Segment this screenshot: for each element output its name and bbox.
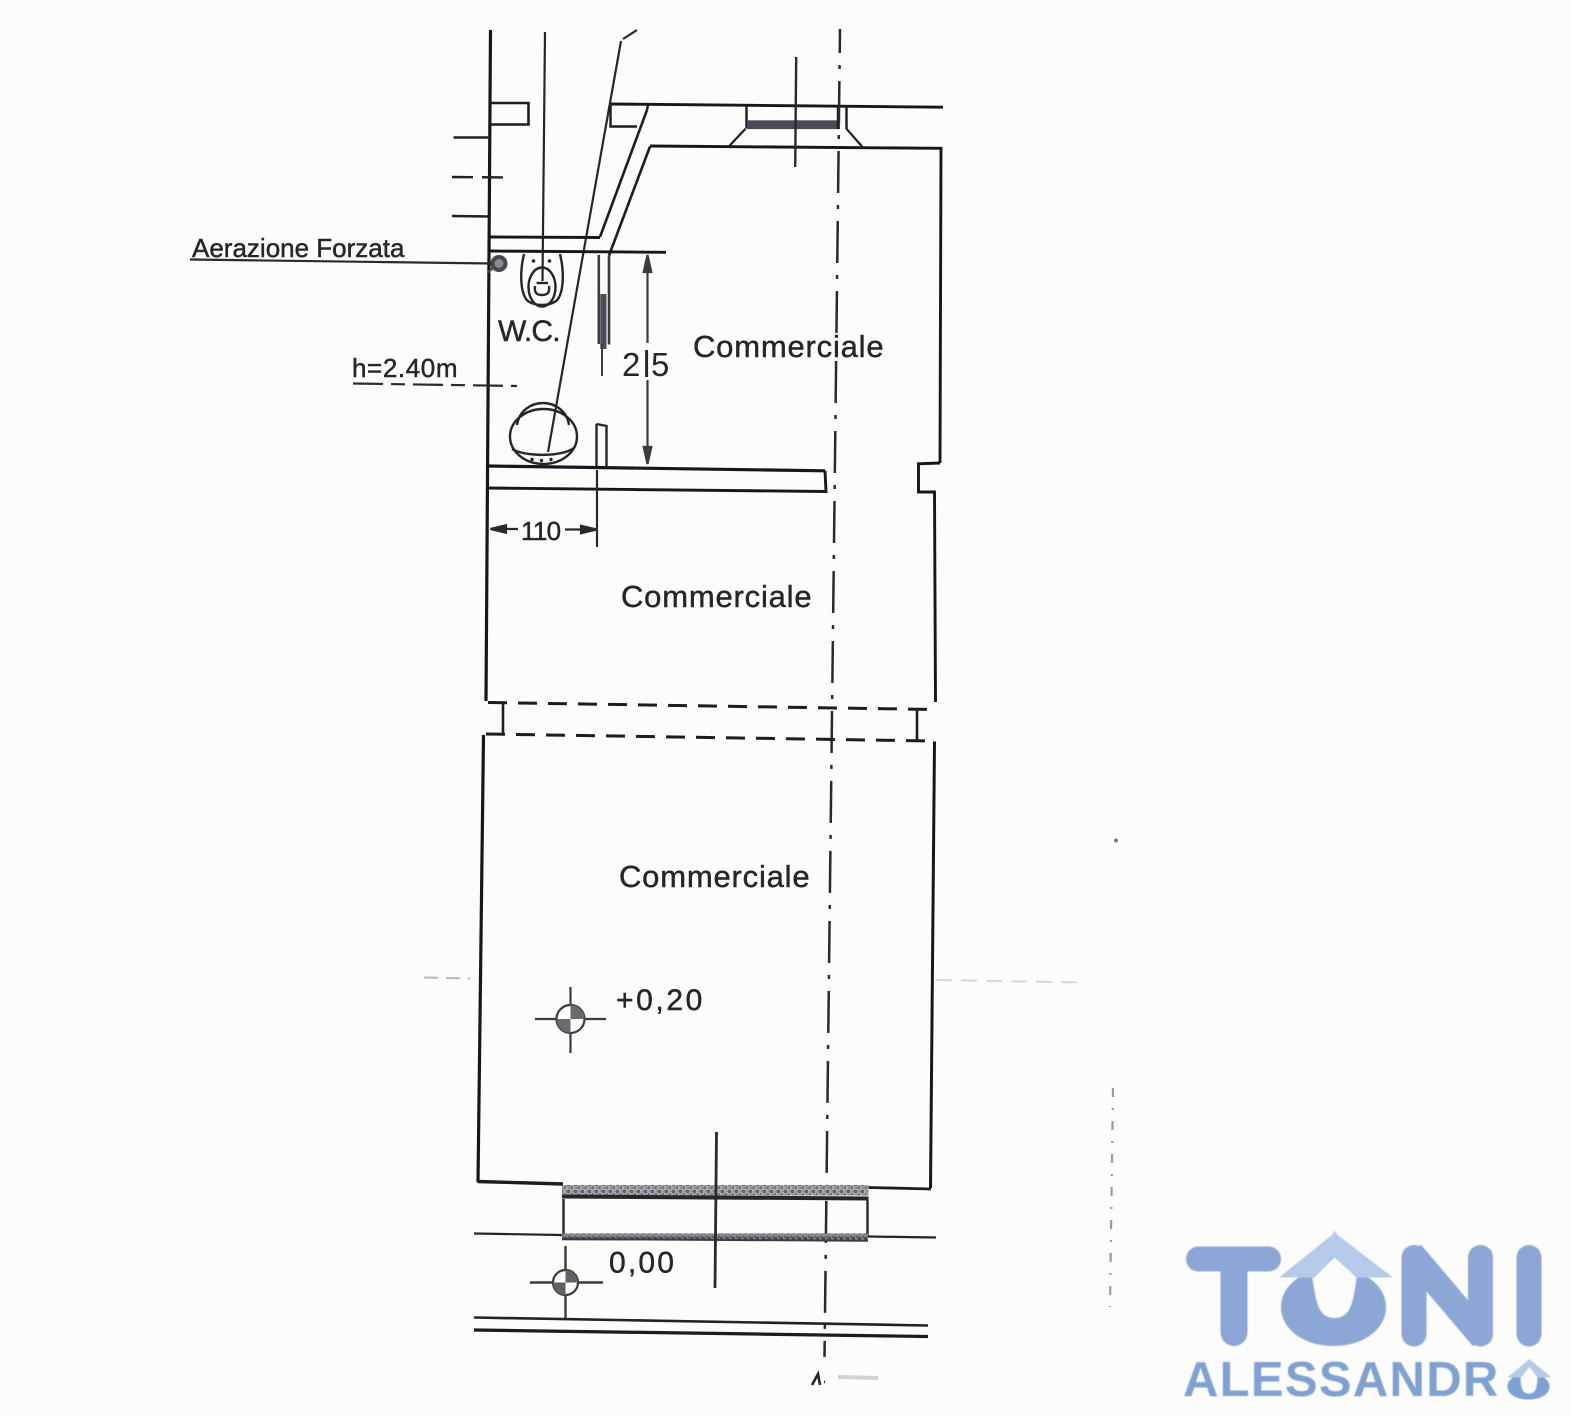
- svg-text:110: 110: [521, 516, 561, 546]
- svg-text:2: 2: [622, 346, 640, 383]
- svg-text:W.C.: W.C.: [498, 315, 560, 348]
- svg-text:5: 5: [651, 346, 669, 383]
- svg-text:Commerciale: Commerciale: [619, 859, 810, 894]
- svg-text:ALESSANDR: ALESSANDR: [1183, 1353, 1500, 1407]
- svg-text:+0,20: +0,20: [616, 984, 705, 1017]
- svg-text:Aerazione Forzata: Aerazione Forzata: [192, 233, 405, 263]
- svg-text:0,00: 0,00: [609, 1247, 676, 1280]
- svg-text:Commerciale: Commerciale: [693, 329, 884, 364]
- svg-text:h=2.40m: h=2.40m: [352, 353, 458, 383]
- svg-text:Commerciale: Commerciale: [621, 579, 812, 614]
